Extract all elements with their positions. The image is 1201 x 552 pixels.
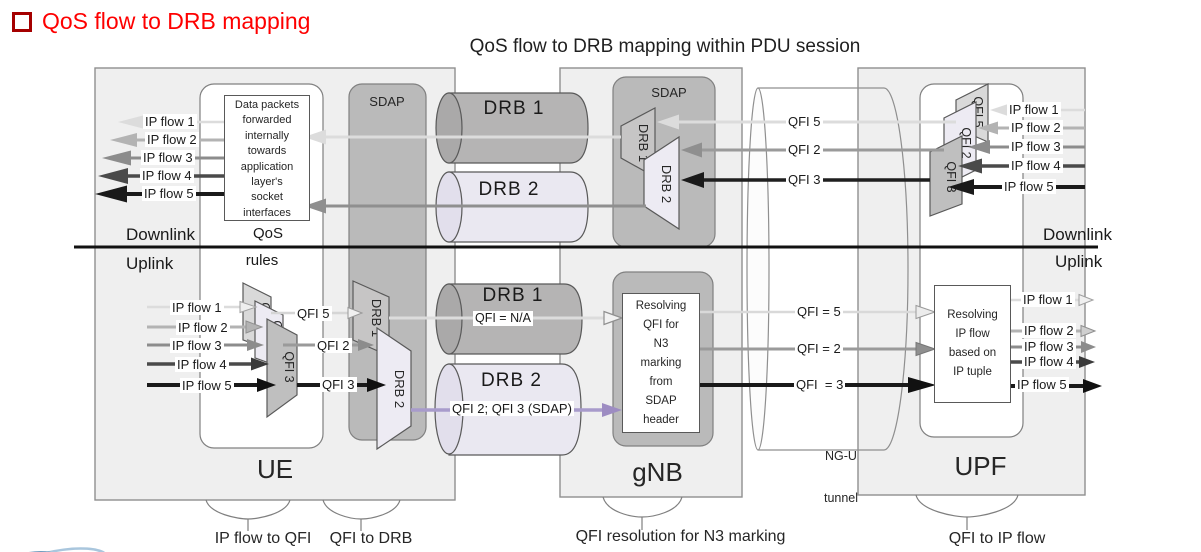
ipflow-label: IP flow 5 <box>1015 377 1069 392</box>
uplink-label-right: Uplink <box>1055 254 1102 269</box>
note-line: layer's <box>225 175 309 190</box>
ipflow-label: IP flow 2 <box>145 132 199 147</box>
ue-funnel-qfi3-label: QFI 3 <box>282 351 296 382</box>
ue-sdap-label: SDAP <box>357 94 417 109</box>
ngu-tunnel-label: NG-U tunnel <box>818 421 864 519</box>
qfi-downlink-label: QFI 5 <box>786 114 823 129</box>
ngu-tunnel-label-line1: NG-U <box>818 449 864 463</box>
qfi-n3-label: QFI = 2 <box>795 341 843 356</box>
ipflow-label: IP flow 2 <box>176 320 230 335</box>
drb1-qfi-annotation: QFI = N/A <box>473 311 533 326</box>
note-line: header <box>623 411 699 430</box>
ipflow-label: IP flow 2 <box>1022 323 1076 338</box>
ipflow-label: IP flow 1 <box>170 300 224 315</box>
diagram-title: QoS flow to DRB mapping within PDU sessi… <box>415 36 915 58</box>
note-line: towards <box>225 144 309 159</box>
ipflow-label: IP flow 3 <box>1022 339 1076 354</box>
qfi-uplink-ue-label: QFI 2 <box>315 338 352 353</box>
gnb-node-label: gNB <box>615 465 700 480</box>
ue-funnel-drb2-label: DRB 2 <box>392 370 407 408</box>
ue-data-packets-note: Data packets forwarded internally toward… <box>224 95 310 221</box>
ue-node-label: UE <box>240 462 310 477</box>
ipflow-label: IP flow 4 <box>1009 158 1063 173</box>
ipflow-label: IP flow 1 <box>143 114 197 129</box>
ipflow-label: IP flow 3 <box>170 338 224 353</box>
caption-qfi-resolution: QFI resolution for N3 marking <box>558 529 803 544</box>
qfi-downlink-label: QFI 2 <box>786 142 823 157</box>
gnb-funnel-drb2-label: DRB 2 <box>659 165 674 203</box>
uplink-label-left: Uplink <box>126 256 173 271</box>
logo-swirl <box>0 539 113 552</box>
qfi-n3-label: QFI = 5 <box>795 304 843 319</box>
ipflow-label: IP flow 3 <box>141 150 195 165</box>
downlink-label-left: Downlink <box>126 227 195 242</box>
gnb-resolving-note: Resolving QFI for N3 marking from SDAP h… <box>622 293 700 433</box>
note-line: socket <box>225 190 309 205</box>
ngu-tunnel-label-line2: tunnel <box>818 491 864 505</box>
note-line: from <box>623 373 699 392</box>
drb1-uplink-label: DRB 1 <box>468 288 558 303</box>
note-line: SDAP <box>623 392 699 411</box>
qfi-downlink-label: QFI 3 <box>786 172 823 187</box>
gnb-sdap-label: SDAP <box>639 85 699 100</box>
note-line: QFI for <box>623 316 699 335</box>
qos-rules-label-line2: rules <box>222 253 302 268</box>
note-line: application <box>225 160 309 175</box>
ipflow-label: IP flow 1 <box>1021 292 1075 307</box>
note-line: forwarded <box>225 113 309 128</box>
caption-qfi-to-ipflow: QFI to IP flow <box>917 531 1077 546</box>
qfi-uplink-ue-label: QFI 3 <box>320 377 357 392</box>
slide-title: QoS flow to DRB mapping <box>42 8 310 35</box>
qfi-n3-label: QFI = 3 <box>794 377 845 392</box>
note-line: internally <box>225 129 309 144</box>
ipflow-label: IP flow 4 <box>140 168 194 183</box>
qfi-uplink-ue-label: QFI 5 <box>295 306 332 321</box>
slide-header: QoS flow to DRB mapping <box>12 8 310 35</box>
drb2-downlink-label: DRB 2 <box>464 182 554 197</box>
note-line: based on <box>935 344 1010 363</box>
downlink-label-right: Downlink <box>1043 227 1112 242</box>
ipflow-label: IP flow 1 <box>1007 102 1061 117</box>
square-bullet-icon <box>12 12 32 32</box>
ipflow-label: IP flow 4 <box>175 357 229 372</box>
note-line: Data packets <box>225 98 309 113</box>
upf-node-label: UPF <box>938 459 1023 474</box>
ipflow-label: IP flow 3 <box>1009 139 1063 154</box>
upf-resolving-note: Resolving IP flow based on IP tuple <box>934 285 1011 403</box>
ipflow-label: IP flow 4 <box>1022 354 1076 369</box>
drb2-uplink-label: DRB 2 <box>464 373 559 388</box>
caption-qfi-to-drb: QFI to DRB <box>291 531 451 546</box>
drb2-qfi-annotation: QFI 2; QFI 3 (SDAP) <box>450 401 574 416</box>
note-line: Resolving <box>623 297 699 316</box>
note-line: IP flow <box>935 325 1010 344</box>
note-line: Resolving <box>935 306 1010 325</box>
slide: QFI 5 QFI 2 QFI 3 DRB 1 DRB 2 DRB 1 DRB … <box>0 0 1201 552</box>
note-line: N3 <box>623 335 699 354</box>
ipflow-label: IP flow 5 <box>180 378 234 393</box>
note-line: IP tuple <box>935 363 1010 382</box>
ipflow-label: IP flow 5 <box>142 186 196 201</box>
ipflow-label: IP flow 5 <box>1002 179 1056 194</box>
qos-rules-label-line1: QoS <box>228 226 308 241</box>
note-line: marking <box>623 354 699 373</box>
ipflow-label: IP flow 2 <box>1009 120 1063 135</box>
drb1-downlink-label: DRB 1 <box>469 101 559 116</box>
note-line: interfaces <box>225 206 309 221</box>
